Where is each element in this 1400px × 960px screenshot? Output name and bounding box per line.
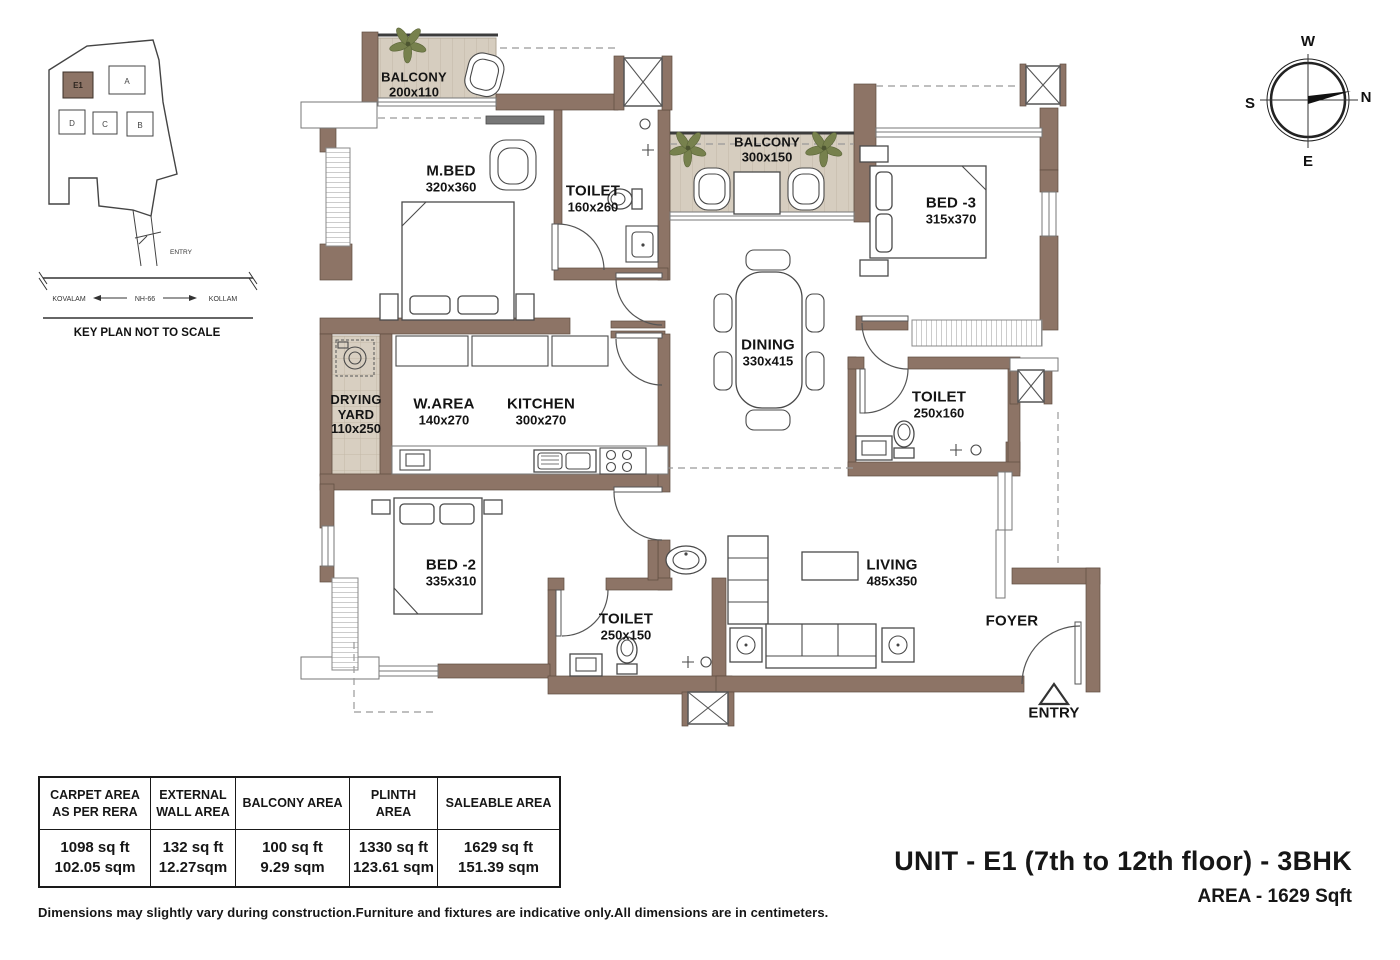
floor-plan: BALCONY 200x110 M.BED 320x360 TOILET 160… bbox=[296, 22, 1112, 742]
room-name: KITCHEN bbox=[507, 396, 575, 413]
table-value: 1330 sq ft 123.61 sqm bbox=[350, 830, 437, 886]
area-subtitle: AREA - 1629 Sqft bbox=[894, 886, 1352, 908]
room-label-foyer: FOYER bbox=[986, 614, 1039, 631]
room-name: TOILET bbox=[599, 611, 653, 628]
table-value: 132 sq ft 12.27sqm bbox=[151, 830, 235, 886]
compass-rose: W N S E bbox=[1238, 20, 1378, 170]
mbed-furniture bbox=[380, 116, 544, 320]
room-dims: 300x150 bbox=[734, 150, 800, 165]
compass-drawing: W N S E bbox=[1238, 20, 1378, 170]
room-label-drying-yard: DRYING YARD 110x250 bbox=[320, 393, 392, 437]
road-right-label: KOLLAM bbox=[209, 296, 238, 303]
room-name: W.AREA bbox=[413, 396, 474, 413]
room-label-bed2: BED -2 335x310 bbox=[426, 557, 477, 588]
area-table: CARPET AREA AS PER RERA 1098 sq ft 102.0… bbox=[38, 776, 561, 888]
room-label-bed3: BED -3 315x370 bbox=[926, 195, 977, 226]
room-name: ENTRY bbox=[1028, 706, 1079, 723]
room-label-warea: W.AREA 140x270 bbox=[413, 396, 474, 427]
room-label-entry: ENTRY bbox=[1028, 706, 1079, 723]
table-value: 100 sq ft 9.29 sqm bbox=[236, 830, 349, 886]
room-dims: 250x150 bbox=[599, 628, 653, 643]
compass-s: S bbox=[1245, 95, 1255, 112]
floorplan-page: { "header": { "unit_title": "UNIT - E1 (… bbox=[0, 0, 1400, 960]
table-header: SALEABLE AREA bbox=[438, 778, 559, 830]
table-col-carpet: CARPET AREA AS PER RERA 1098 sq ft 102.0… bbox=[40, 778, 151, 886]
room-label-toilet-bed3: TOILET 250x160 bbox=[912, 389, 966, 420]
table-col-saleable: SALEABLE AREA 1629 sq ft 151.39 sqm bbox=[438, 778, 559, 886]
road-section: KOVALAM NH-66 KOLLAM bbox=[39, 272, 257, 318]
building-d-label: D bbox=[69, 119, 75, 128]
room-label-kitchen: KITCHEN 300x270 bbox=[507, 396, 575, 427]
toilet-bed3-fixtures bbox=[856, 421, 981, 460]
road-center-label: NH-66 bbox=[135, 296, 155, 303]
room-dims: 250x160 bbox=[912, 406, 966, 421]
room-dims: 320x360 bbox=[426, 180, 477, 195]
table-header: EXTERNAL WALL AREA bbox=[151, 778, 235, 830]
building-b-label: B bbox=[137, 121, 142, 130]
room-dims: 335x310 bbox=[426, 574, 477, 589]
room-name: LIVING bbox=[866, 557, 917, 574]
entry-arrow bbox=[1040, 684, 1068, 704]
room-name: BED -3 bbox=[926, 195, 977, 212]
table-header: CARPET AREA AS PER RERA bbox=[40, 778, 150, 830]
room-label-toilet-common: TOILET 250x150 bbox=[599, 611, 653, 642]
disclaimer-text: Dimensions may slightly vary during cons… bbox=[38, 905, 828, 920]
key-plan-entry-label: ENTRY bbox=[170, 249, 193, 256]
room-label-toilet-mbed: TOILET 160x260 bbox=[566, 183, 620, 214]
table-header: BALCONY AREA bbox=[236, 778, 349, 830]
title-block: UNIT - E1 (7th to 12th floor) - 3BHK ARE… bbox=[894, 846, 1352, 908]
room-label-living: LIVING 485x350 bbox=[866, 557, 917, 588]
key-plan-drawing: E1 A D C B ENTRY KOVALAM NH-66 KOLLAM KE… bbox=[35, 26, 265, 341]
table-col-plinth: PLINTH AREA 1330 sq ft 123.61 sqm bbox=[350, 778, 438, 886]
room-name: DRYING YARD bbox=[320, 393, 392, 422]
key-plan: E1 A D C B ENTRY KOVALAM NH-66 KOLLAM KE… bbox=[35, 26, 265, 341]
room-dims: 315x370 bbox=[926, 212, 977, 227]
room-name: TOILET bbox=[912, 389, 966, 406]
table-value: 1629 sq ft 151.39 sqm bbox=[438, 830, 559, 886]
table-value: 1098 sq ft 102.05 sqm bbox=[40, 830, 150, 886]
room-label-balcony-mid: BALCONY 300x150 bbox=[734, 135, 800, 164]
compass-n: N bbox=[1361, 89, 1372, 106]
compass-e: E bbox=[1303, 153, 1313, 170]
floor-plan-drawing bbox=[296, 22, 1112, 742]
room-dims: 110x250 bbox=[320, 422, 392, 437]
room-dims: 160x260 bbox=[566, 200, 620, 215]
room-name: TOILET bbox=[566, 183, 620, 200]
room-name: DINING bbox=[741, 337, 795, 354]
room-name: BED -2 bbox=[426, 557, 477, 574]
table-col-external-wall: EXTERNAL WALL AREA 132 sq ft 12.27sqm bbox=[151, 778, 236, 886]
table-header: PLINTH AREA bbox=[350, 778, 437, 830]
compass-w: W bbox=[1301, 33, 1316, 50]
building-c-label: C bbox=[102, 120, 108, 129]
room-name: M.BED bbox=[426, 163, 477, 180]
room-dims: 200x110 bbox=[381, 85, 447, 100]
key-plan-caption: KEY PLAN NOT TO SCALE bbox=[74, 327, 221, 339]
room-name: BALCONY bbox=[734, 135, 800, 150]
room-dims: 140x270 bbox=[413, 413, 474, 428]
road-left-label: KOVALAM bbox=[52, 296, 85, 303]
room-dims: 485x350 bbox=[866, 574, 917, 589]
room-label-mbed: M.BED 320x360 bbox=[426, 163, 477, 194]
room-label-balcony-top: BALCONY 200x110 bbox=[381, 70, 447, 99]
unit-title: UNIT - E1 (7th to 12th floor) - 3BHK bbox=[894, 846, 1352, 877]
room-name: BALCONY bbox=[381, 70, 447, 85]
room-label-dining: DINING 330x415 bbox=[741, 337, 795, 368]
table-col-balcony: BALCONY AREA 100 sq ft 9.29 sqm bbox=[236, 778, 350, 886]
room-dims: 300x270 bbox=[507, 413, 575, 428]
room-dims: 330x415 bbox=[741, 354, 795, 369]
building-a-label: A bbox=[124, 77, 130, 86]
building-e1-label: E1 bbox=[73, 81, 83, 90]
room-name: FOYER bbox=[986, 614, 1039, 631]
